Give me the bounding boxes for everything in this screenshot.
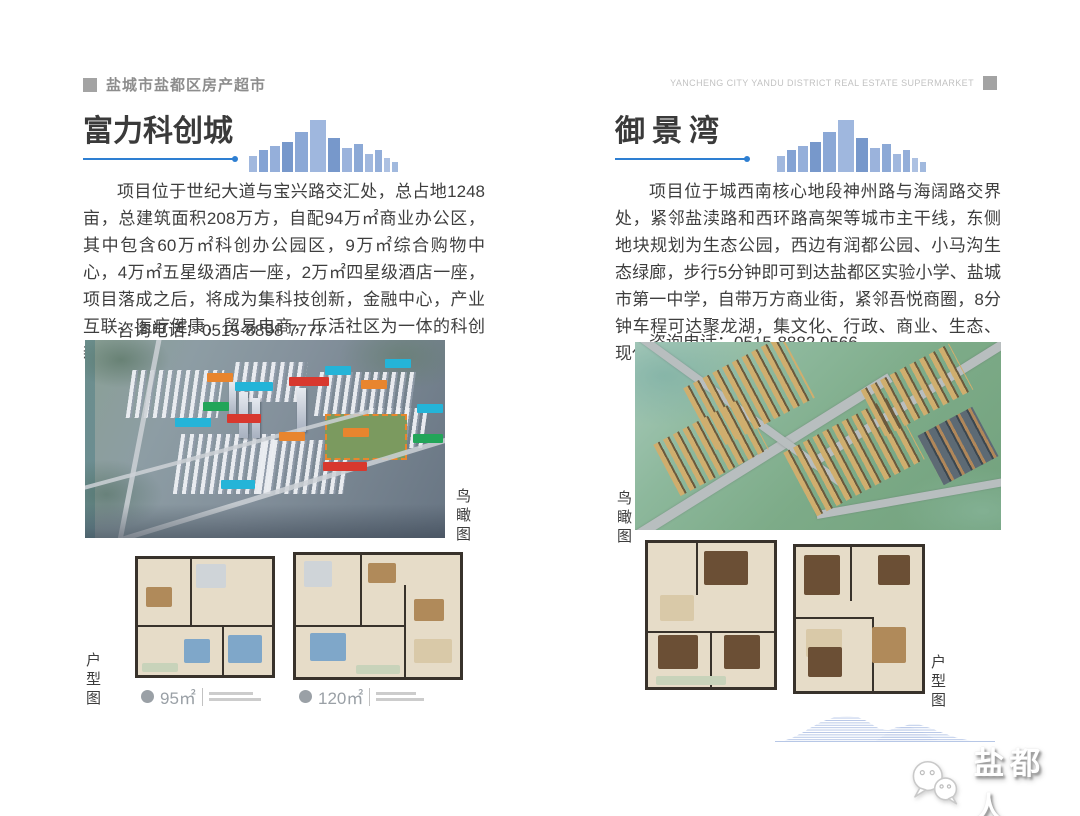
floorplan-table bbox=[368, 563, 396, 583]
floorplan-image bbox=[793, 544, 925, 694]
label-chip-green bbox=[203, 402, 229, 411]
floorplan-image-120 bbox=[293, 552, 463, 680]
floorplan-bed bbox=[804, 555, 840, 595]
floorplan-wall bbox=[796, 617, 874, 619]
city-skyline-icon bbox=[249, 118, 399, 172]
caption-divider bbox=[202, 688, 203, 706]
project-phone: 咨询电话：0515-8898 7777 bbox=[83, 316, 326, 341]
aerial-view-image bbox=[85, 340, 445, 538]
caption-divider bbox=[369, 688, 370, 706]
label-chip-green bbox=[413, 434, 443, 443]
floorplan-wall bbox=[138, 625, 272, 627]
label-chip-teal bbox=[221, 480, 255, 489]
floorplan-wall bbox=[404, 585, 406, 677]
floorplan-bed bbox=[724, 635, 760, 669]
floorplan-bathroom bbox=[304, 561, 332, 587]
brand-name: 盐都人 bbox=[973, 738, 1080, 816]
floorplan-area: 95㎡ bbox=[160, 684, 196, 709]
commercial-building bbox=[917, 407, 998, 486]
title-underline bbox=[615, 158, 747, 160]
caption-note bbox=[209, 692, 261, 701]
floorplan-bed bbox=[878, 555, 910, 585]
label-chip-teal bbox=[385, 359, 411, 368]
floorplan-bed bbox=[808, 647, 842, 677]
floorplan-image-95 bbox=[135, 556, 275, 678]
floorplan-bed bbox=[872, 627, 906, 663]
header-left: 盐城市盐都区房产超市 bbox=[83, 74, 266, 95]
label-chip-red bbox=[289, 377, 329, 386]
project-yujingwan-section: 御景湾 项目位于城西南核心地段神州路与海阔路交界处，紧邻盐渎路和西环路高架等城市… bbox=[615, 114, 1001, 714]
floorplan-caption-95: 95㎡ bbox=[141, 684, 261, 709]
floorplan-rug bbox=[660, 595, 694, 621]
caption-note bbox=[376, 692, 424, 701]
floorplan-dining bbox=[704, 551, 748, 585]
floorplan-image bbox=[645, 540, 777, 690]
floorplan-label: 户型图 bbox=[930, 654, 945, 711]
label-chip-teal bbox=[235, 382, 273, 391]
floorplan-label: 户型图 bbox=[85, 652, 100, 709]
floorplan-table bbox=[414, 599, 444, 621]
floorplan-wall bbox=[696, 543, 698, 595]
floorplan-wall bbox=[296, 625, 406, 627]
city-skyline-icon bbox=[777, 118, 927, 172]
floorplan-balcony bbox=[356, 665, 400, 674]
floorplan-balcony bbox=[656, 676, 726, 685]
floorplan-bed bbox=[184, 639, 210, 663]
floorplan-table bbox=[146, 587, 172, 607]
brochure-page: 盐城市盐都区房产超市 YANCHENG CITY YANDU DISTRICT … bbox=[0, 0, 1080, 816]
floorplan-wall bbox=[190, 559, 192, 627]
label-chip-orange bbox=[361, 380, 387, 389]
header-title-en: YANCHENG CITY YANDU DISTRICT REAL ESTATE… bbox=[670, 78, 974, 88]
floorplan-bed bbox=[228, 635, 262, 663]
aerial-view-label: 鸟瞰图 bbox=[455, 488, 470, 545]
label-chip-red bbox=[323, 462, 367, 471]
label-chip-teal bbox=[325, 366, 351, 375]
caption-dot-icon bbox=[299, 690, 312, 703]
floorplan-wall bbox=[360, 555, 362, 627]
header-square-icon bbox=[83, 78, 97, 92]
title-underline bbox=[83, 158, 235, 160]
brand-footer: 盐都人 bbox=[908, 738, 1080, 816]
floorplan-wall bbox=[850, 547, 852, 601]
floorplan-bathroom bbox=[196, 564, 226, 588]
caption-dot-icon bbox=[141, 690, 154, 703]
project-fuli-section: 富力科创城 项目位于世纪大道与宝兴路交汇处，总占地1248亩，总建筑面积208万… bbox=[83, 114, 485, 714]
label-chip-orange bbox=[207, 373, 233, 382]
floorplan-balcony bbox=[142, 663, 178, 672]
header-square-icon bbox=[983, 76, 997, 90]
floorplan-wall bbox=[222, 625, 224, 677]
header-right: YANCHENG CITY YANDU DISTRICT REAL ESTATE… bbox=[670, 76, 997, 90]
aerial-view-image bbox=[635, 342, 1001, 530]
floorplan-caption-120: 120㎡ bbox=[299, 684, 424, 709]
label-chip-teal bbox=[175, 418, 211, 427]
floorplan-area: 120㎡ bbox=[318, 684, 363, 709]
label-chip-red bbox=[227, 414, 261, 423]
floorplan-rug bbox=[414, 639, 452, 663]
header-title-cn: 盐城市盐都区房产超市 bbox=[106, 74, 266, 95]
aerial-view-label: 鸟瞰图 bbox=[616, 490, 631, 547]
floorplan-bed bbox=[310, 633, 346, 661]
wechat-icon bbox=[908, 758, 965, 808]
label-chip-teal bbox=[417, 404, 443, 413]
label-chip-orange bbox=[279, 432, 305, 441]
label-chip-orange bbox=[343, 428, 369, 437]
floorplan-bed bbox=[658, 635, 698, 669]
